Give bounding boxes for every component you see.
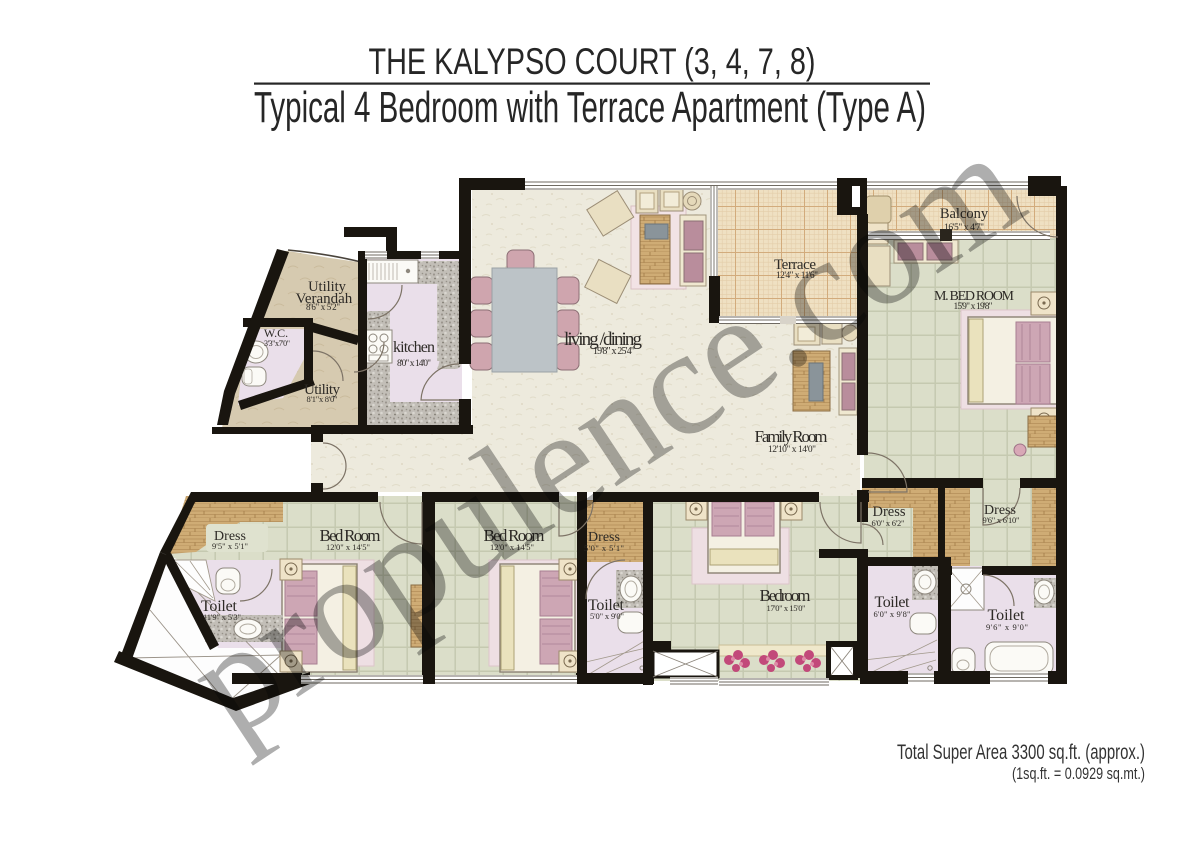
svg-text:9'6" x 9'0": 9'6" x 9'0" <box>986 622 1028 632</box>
svg-text:8'6" x 5'2": 8'6" x 5'2" <box>306 302 340 312</box>
svg-text:6'0" x 9'8": 6'0" x 9'8" <box>874 609 911 619</box>
svg-text:3'3"x7'0": 3'3"x7'0" <box>264 339 290 348</box>
svg-text:15'9" x 19'8": 15'9" x 19'8" <box>954 302 993 312</box>
svg-text:6'0" x 6'2": 6'0" x 6'2" <box>872 518 905 528</box>
svg-text:W.C.: W.C. <box>264 326 288 340</box>
svg-text:9'6" x 6'10": 9'6" x 6'10" <box>983 515 1020 525</box>
svg-text:Total Super Area 3300 sq.ft. (: Total Super Area 3300 sq.ft. (approx.) <box>897 741 1145 764</box>
svg-text:Typical 4 Bedroom with Terrace: Typical 4 Bedroom with Terrace Apartment… <box>254 83 926 132</box>
svg-text:12'10" x 14'0": 12'10" x 14'0" <box>768 445 816 455</box>
svg-text:(1sq.ft. = 0.0929 sq.mt.): (1sq.ft. = 0.0929 sq.mt.) <box>1012 764 1145 783</box>
svg-text:8'1"x 8'0": 8'1"x 8'0" <box>307 394 338 404</box>
svg-text:Family Room: Family Room <box>755 427 828 446</box>
svg-text:kitchen: kitchen <box>393 339 435 356</box>
svg-text:17'0" x 15'0": 17'0" x 15'0" <box>767 603 806 613</box>
svg-text:5'0" x 9'0": 5'0" x 9'0" <box>590 611 624 621</box>
svg-text:8'0" x 14'0": 8'0" x 14'0" <box>397 359 431 369</box>
svg-text:5'0" x 5'1": 5'0" x 5'1" <box>584 543 624 553</box>
svg-text:9'5" x 5'1": 9'5" x 5'1" <box>212 541 248 551</box>
svg-text:THE KALYPSO COURT (3, 4, 7, 8): THE KALYPSO COURT (3, 4, 7, 8) <box>369 41 816 82</box>
